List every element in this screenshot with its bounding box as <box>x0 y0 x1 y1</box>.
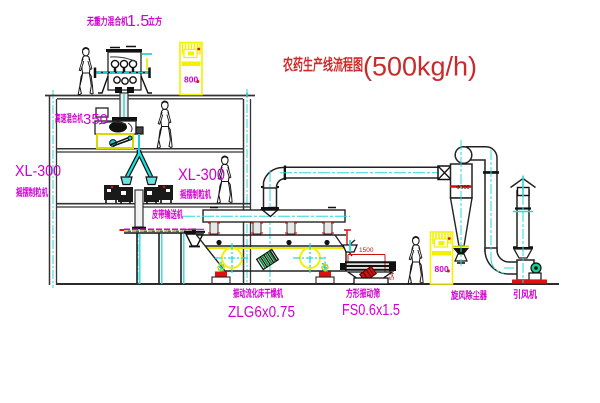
svg-text:振动流化床干燥机: 振动流化床干燥机 <box>233 287 283 300</box>
svg-text:350: 350 <box>83 111 108 128</box>
svg-text:农药生产线流程图: 农药生产线流程图 <box>282 55 363 74</box>
svg-text:FS0.6x1.5: FS0.6x1.5 <box>342 302 400 319</box>
svg-text:无重力混合机: 无重力混合机 <box>86 15 128 28</box>
svg-text:皮带输送机: 皮带输送机 <box>151 208 183 221</box>
svg-text:立方: 立方 <box>148 15 162 28</box>
svg-text:旋风除尘器: 旋风除尘器 <box>450 289 487 302</box>
svg-text:1.5: 1.5 <box>127 13 149 30</box>
svg-text:(500kg/h): (500kg/h) <box>363 52 477 82</box>
svg-text:XL-300: XL-300 <box>178 166 225 184</box>
svg-text:Φ800: Φ800 <box>456 185 470 191</box>
svg-text:高速混合机: 高速混合机 <box>55 112 83 125</box>
svg-text:1500: 1500 <box>359 247 374 254</box>
svg-text:引风机: 引风机 <box>513 288 537 301</box>
svg-text:ZLG6x0.75: ZLG6x0.75 <box>228 304 295 321</box>
svg-text:方形振动筛: 方形振动筛 <box>346 287 380 300</box>
svg-text:XL-300: XL-300 <box>15 163 61 180</box>
svg-text:摇摆制粒机: 摇摆制粒机 <box>180 188 211 201</box>
svg-text:摇摆制粒机: 摇摆制粒机 <box>16 186 48 199</box>
